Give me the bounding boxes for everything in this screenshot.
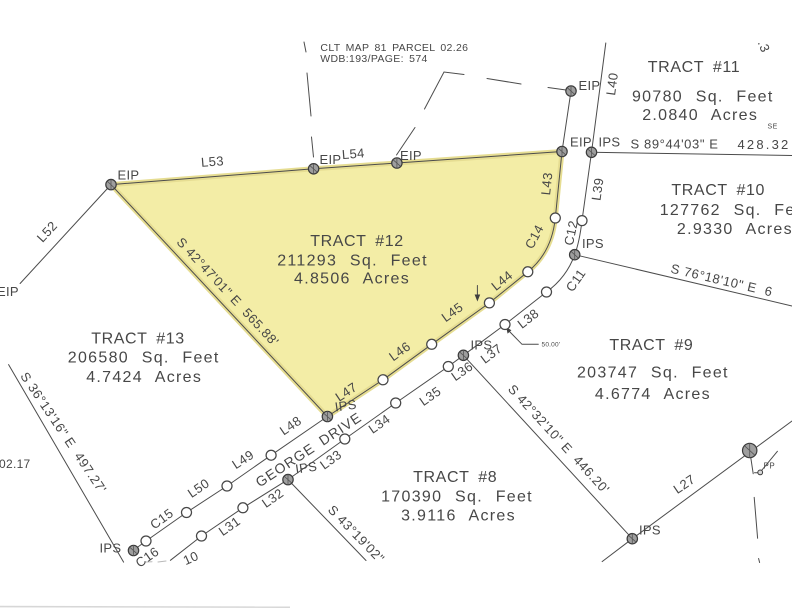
svg-text:EIP: EIP — [0, 284, 19, 299]
svg-text:127762 Sq. Feet: 127762 Sq. Feet — [660, 202, 792, 219]
svg-text:203747 Sq. Feet: 203747 Sq. Feet — [577, 364, 729, 381]
svg-text:TRACT #11: TRACT #11 — [648, 59, 740, 76]
svg-text:L54: L54 — [341, 145, 365, 162]
svg-text:IPS: IPS — [471, 338, 493, 353]
svg-text:L40: L40 — [603, 72, 621, 97]
svg-text:TRACT #13: TRACT #13 — [91, 331, 185, 348]
svg-text:211293 Sq. Feet: 211293 Sq. Feet — [277, 253, 428, 270]
svg-text:4.8506 Acres: 4.8506 Acres — [294, 271, 410, 288]
svg-text:EIP: EIP — [320, 152, 342, 167]
svg-text:4.6774 Acres: 4.6774 Acres — [595, 386, 711, 403]
svg-text:IPS: IPS — [582, 236, 604, 251]
svg-text:L53: L53 — [200, 153, 224, 170]
svg-text:L43: L43 — [538, 172, 555, 196]
svg-text:TRACT #10: TRACT #10 — [671, 182, 765, 199]
svg-text:90780 Sq. Feet: 90780 Sq. Feet — [632, 89, 774, 106]
svg-text:IPS: IPS — [639, 523, 661, 538]
svg-text:2.0840 Acres: 2.0840 Acres — [642, 107, 758, 124]
svg-text:WDB:193/PAGE: 574: WDB:193/PAGE: 574 — [320, 53, 428, 65]
svg-text:170390 Sq. Feet: 170390 Sq. Feet — [381, 488, 533, 505]
svg-text:3.9116 Acres: 3.9116 Acres — [401, 507, 516, 524]
svg-text:IPS: IPS — [100, 540, 122, 555]
svg-text:EIP: EIP — [579, 78, 601, 93]
svg-text:S 89°44'03" E: S 89°44'03" E — [631, 136, 719, 151]
svg-text:PP: PP — [764, 462, 776, 471]
svg-text:2.9330 Acres: 2.9330 Acres — [677, 221, 792, 238]
svg-text:02.17: 02.17 — [0, 457, 31, 471]
svg-text:SE: SE — [768, 124, 778, 131]
svg-text:IPS: IPS — [599, 135, 621, 150]
svg-text:428.32: 428.32 — [738, 137, 791, 152]
svg-text:EIP: EIP — [570, 135, 592, 150]
svg-text:206580 Sq. Feet: 206580 Sq. Feet — [68, 349, 220, 366]
svg-text:EIP: EIP — [118, 168, 140, 183]
svg-text:TRACT #12: TRACT #12 — [310, 233, 404, 250]
svg-text:4.7424 Acres: 4.7424 Acres — [86, 369, 202, 386]
svg-text:L39: L39 — [588, 177, 606, 202]
svg-text:50.00': 50.00' — [542, 342, 561, 349]
svg-text:EIP: EIP — [400, 148, 422, 163]
svg-text:TRACT #9: TRACT #9 — [609, 337, 693, 354]
svg-text:TRACT #8: TRACT #8 — [413, 469, 497, 486]
